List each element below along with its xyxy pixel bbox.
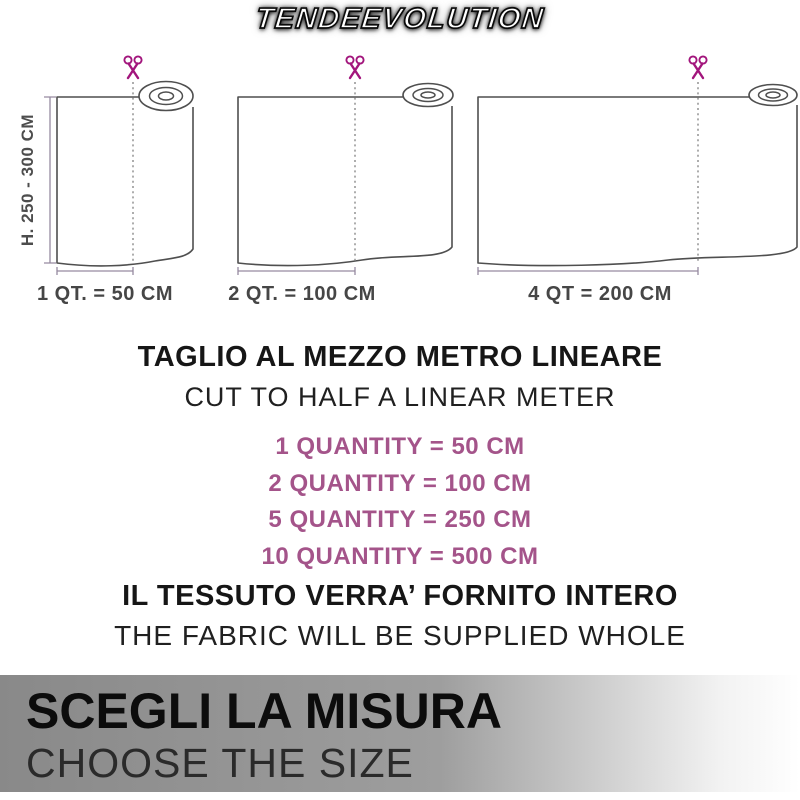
banner-title-english: CHOOSE THE SIZE bbox=[26, 739, 800, 787]
quantity-line-2: 2 QUANTITY = 100 CM bbox=[0, 466, 800, 503]
height-range-label: H. 250 - 300 CM bbox=[18, 85, 42, 275]
roll-cylinder bbox=[403, 84, 453, 107]
supplied-whole-note-italian: IL TESSUTO VERRA’ FORNITO INTERO bbox=[0, 580, 800, 613]
fabric-sheet bbox=[238, 97, 452, 266]
scissors-icon bbox=[689, 56, 706, 78]
width-measure-line bbox=[57, 267, 133, 275]
width-measure-line bbox=[238, 267, 355, 275]
product-infographic: TENDEEVOLUTION bbox=[0, 0, 800, 800]
scissors-icon bbox=[124, 56, 141, 78]
cut-title-italian: TAGLIO AL MEZZO METRO LINEARE bbox=[0, 341, 800, 374]
fabric-roll-1 bbox=[57, 56, 193, 275]
width-measure-line bbox=[478, 267, 698, 275]
supplied-whole-note-english: THE FABRIC WILL BE SUPPLIED WHOLE bbox=[0, 620, 800, 652]
brand-logo: TENDEEVOLUTION bbox=[0, 3, 800, 36]
roll-2-label: 2 QT. = 100 CM bbox=[217, 283, 387, 306]
fabric-diagram-canvas bbox=[0, 45, 800, 320]
fabric-roll-2 bbox=[238, 56, 453, 275]
cut-title-english: CUT TO HALF A LINEAR METER bbox=[0, 382, 800, 413]
fabric-cut-diagram: H. 250 - 300 CM 1 QT. = 50 CM 2 QT. = 10… bbox=[0, 45, 800, 320]
quantity-line-3: 5 QUANTITY = 250 CM bbox=[0, 502, 800, 539]
roll-3-label: 4 QT = 200 CM bbox=[495, 283, 705, 306]
quantity-line-1: 1 QUANTITY = 50 CM bbox=[0, 429, 800, 466]
roll-cylinder bbox=[139, 82, 193, 111]
roll-1-label: 1 QT. = 50 CM bbox=[30, 283, 180, 306]
quantity-line-4: 10 QUANTITY = 500 CM bbox=[0, 539, 800, 576]
fabric-sheet bbox=[478, 97, 797, 266]
banner-title-italian: SCEGLI LA MISURA bbox=[26, 683, 800, 739]
height-measure-line bbox=[44, 97, 56, 263]
fabric-sheet bbox=[57, 97, 193, 266]
scissors-icon bbox=[346, 56, 363, 78]
fabric-roll-3 bbox=[478, 56, 797, 275]
quantity-conversion-list: 1 QUANTITY = 50 CM 2 QUANTITY = 100 CM 5… bbox=[0, 429, 800, 575]
size-banner: SCEGLI LA MISURA CHOOSE THE SIZE bbox=[0, 675, 800, 792]
roll-cylinder bbox=[749, 85, 797, 106]
